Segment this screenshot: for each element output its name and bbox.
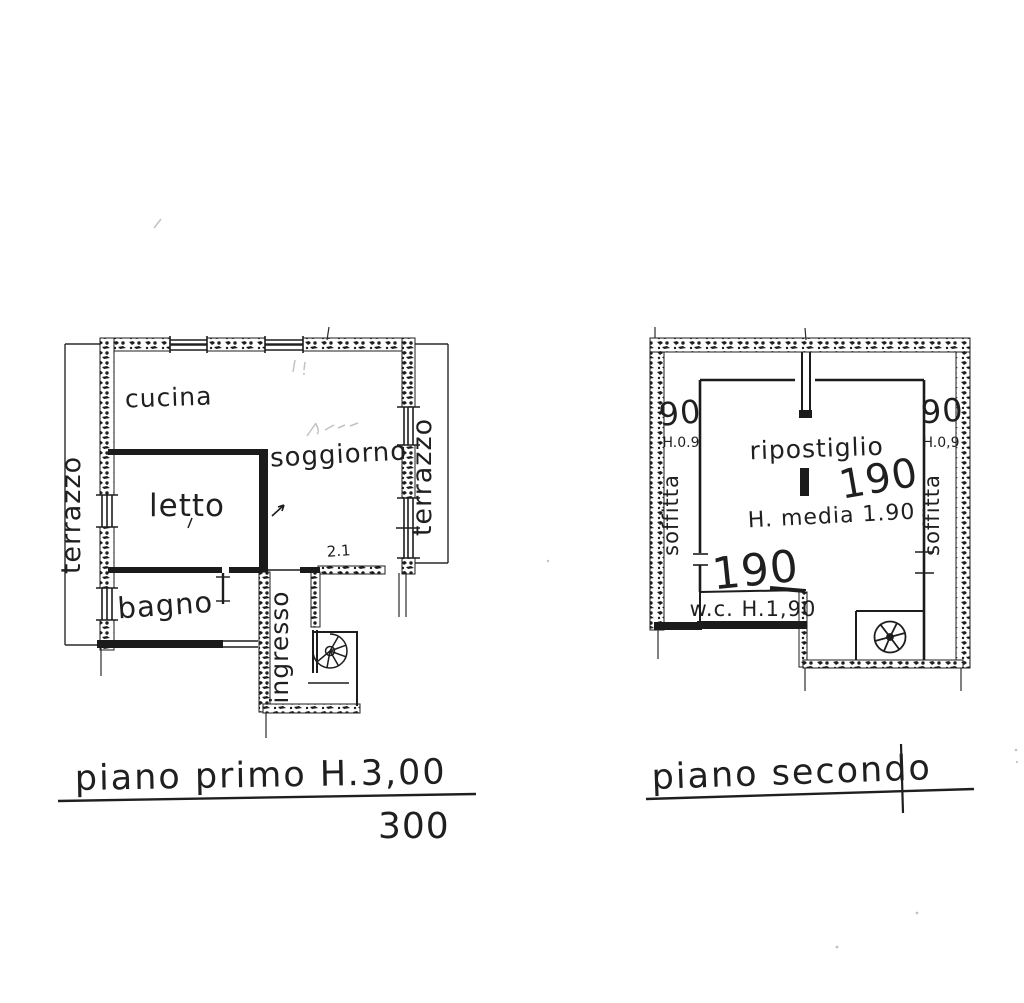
soffitta-right-width: 90 [920, 391, 965, 432]
room-label-wc: w.c. H.1,90 [690, 597, 817, 621]
soffitta-left-label: soffitta [659, 474, 683, 556]
first-floor-dimension: 300 [378, 806, 450, 847]
room-label-bagno: bagno [116, 585, 214, 626]
soffitta-right-label: soffitta [920, 474, 944, 556]
room-label-cucina: cucina [124, 381, 212, 413]
soffitta-left-width: 90 [657, 392, 703, 434]
soffitta-right-height: H.0,9 [923, 435, 960, 451]
room-label-terrazzo-right: terrazzo [407, 418, 438, 536]
pencil-note: 2.1 [326, 541, 351, 561]
second-floor-plan: 90 H.0.9 soffitta 90 H.0,9 soffitta ripo… [646, 327, 974, 813]
room-label-ingresso: ingresso [265, 590, 294, 703]
height-note: H. media 1.90 [747, 500, 916, 534]
fan-icon [875, 622, 906, 653]
room-label-letto: letto [149, 488, 225, 524]
first-floor-plan: cucina soggiorno letto bagno ingresso te… [56, 219, 476, 847]
scanned-floor-plan-page: cucina soggiorno letto bagno ingresso te… [0, 0, 1024, 1003]
room-label-terrazzo-left: terrazzo [56, 456, 87, 574]
floor-plan-drawing: cucina soggiorno letto bagno ingresso te… [0, 0, 1024, 1003]
first-floor-caption: piano primo H.3,00 [74, 753, 446, 799]
spiral-staircase-icon [313, 634, 347, 668]
room-label-soggiorno: soggiorno [269, 436, 408, 473]
soffitta-left-height: H.0.9 [663, 435, 700, 451]
door-swing-arrow [272, 505, 284, 516]
dimension-190-lower: 190 [710, 541, 802, 601]
